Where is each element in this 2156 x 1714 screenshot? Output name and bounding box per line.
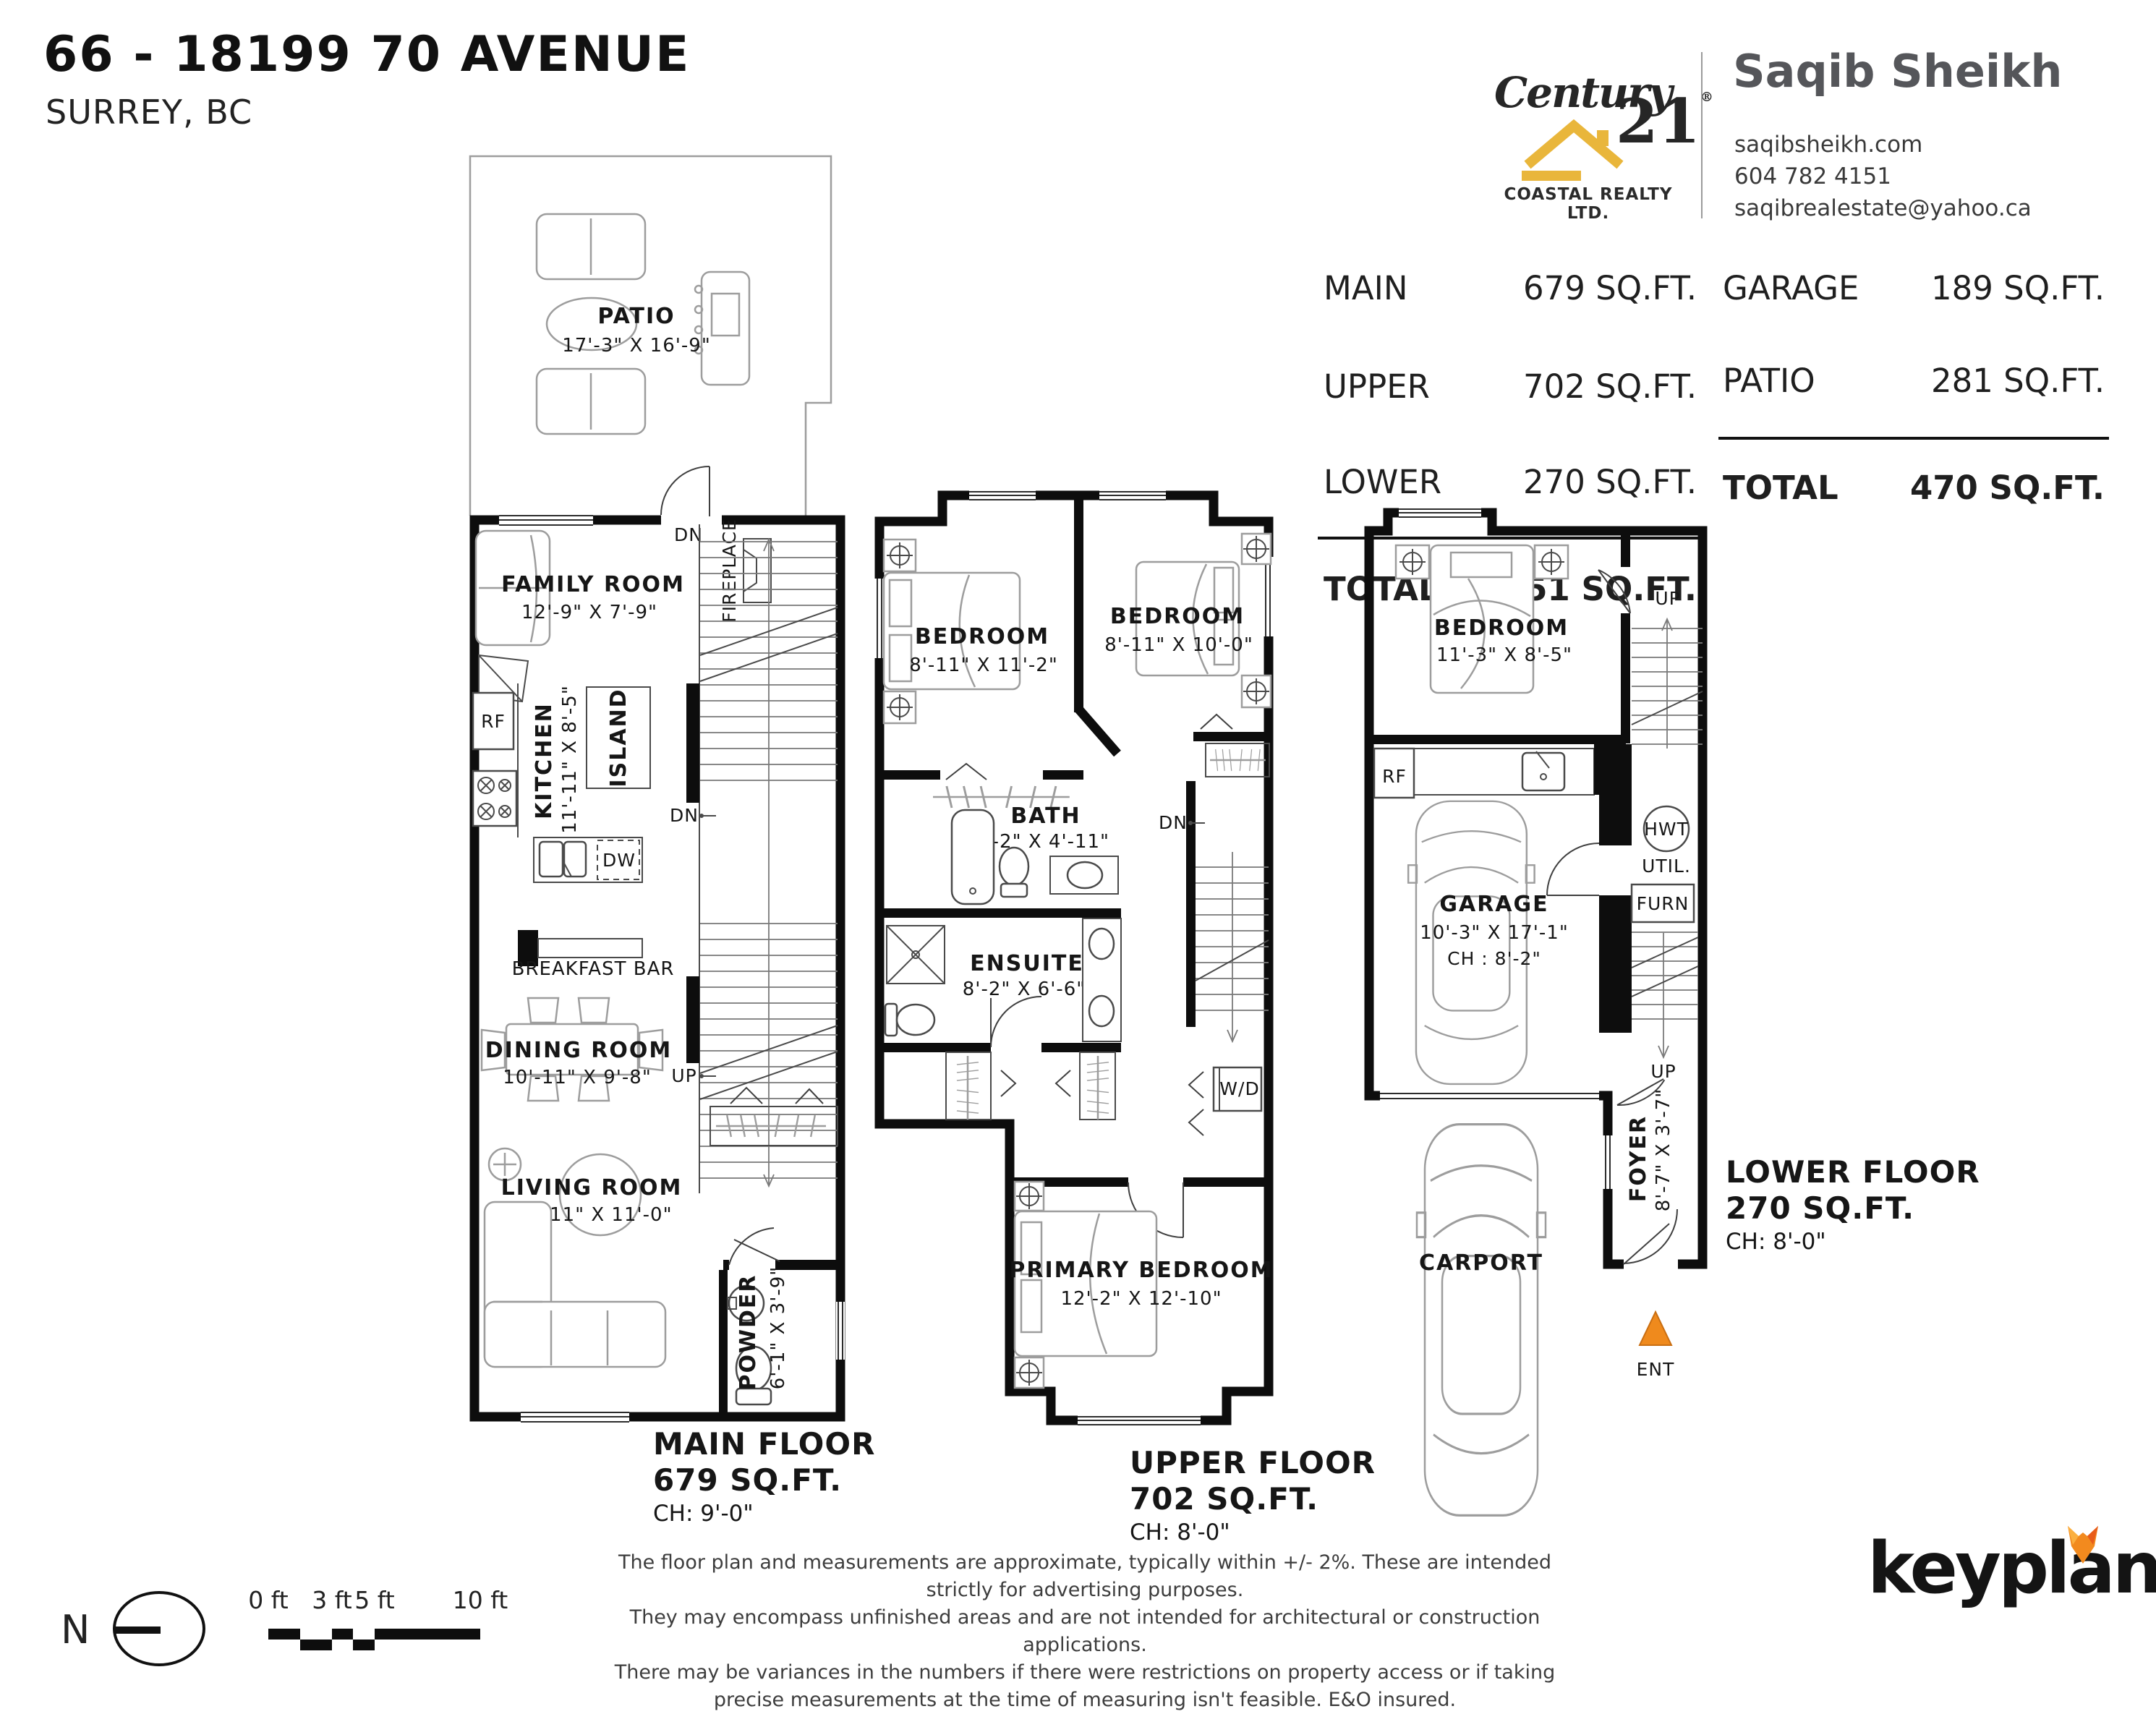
closet: [879, 764, 1083, 808]
room-label-powder: POWDER: [736, 1274, 761, 1390]
room-label-kitchen: KITCHEN: [532, 702, 557, 819]
lower-floor-plan: BEDROOM 11'-3" X 8'-5" UP RF GARAGE 10'-…: [1360, 499, 1779, 1526]
carport-car: [1417, 1125, 1546, 1516]
room-dims-dining: 10'-11" X 9'-8": [503, 1067, 652, 1088]
bathroom: BATH 8'-2" X 4'-11": [879, 803, 1121, 918]
brand-subline: COASTAL REALTY LTD.: [1491, 185, 1685, 223]
bathtub: [952, 810, 994, 904]
room-label-primary: PRIMARY BEDROOM: [1009, 1258, 1273, 1283]
room-label-dining: DINING ROOM: [485, 1038, 672, 1063]
table-divider: [1718, 437, 2109, 440]
toilet: [1000, 848, 1028, 897]
room-ch-garage: CH : 8'-2": [1447, 948, 1541, 969]
room-label-ensuite: ENSUITE: [970, 951, 1084, 976]
ent-label: ENT: [1637, 1359, 1675, 1380]
dining-room: DINING ROOM 10'-11" X 9'-8": [482, 998, 672, 1101]
stair-label-dn: DN: [674, 524, 703, 545]
room-dims-primary: 12'-2" X 12'-10": [1060, 1288, 1222, 1310]
room-dims-kitchen: 11'-11" X 8'-5": [559, 685, 581, 834]
powder-room: POWDER 6'-1" X 3'-9": [719, 1228, 845, 1419]
room-label-bedroom1: BEDROOM: [915, 624, 1049, 649]
util-label: UTIL.: [1642, 856, 1691, 877]
stove: [473, 771, 516, 826]
room-dims-bedroom1: 8'-11" X 11'-2": [909, 655, 1058, 676]
page-title: 66 - 18199 70 AVENUE: [43, 26, 690, 83]
patio: PATIO 17'-3" X 16'-9": [470, 156, 831, 516]
bbq-grill: [695, 272, 749, 385]
carport: CARPORT: [1417, 1125, 1546, 1516]
staircase: UP: [1632, 926, 1698, 1082]
room-label-foyer: FOYER: [1626, 1115, 1651, 1202]
room-dims-ensuite: 8'-2" X 6'-6": [963, 978, 1086, 1000]
dishwasher-label: DW: [602, 850, 636, 871]
brand-number: 21®: [1616, 91, 1713, 152]
bedroom: BEDROOM 11'-3" X 8'-5": [1369, 531, 1630, 744]
room-dims-powder: 6'-1" X 3'-9": [767, 1266, 789, 1390]
closet: [946, 1052, 1015, 1120]
room-label-living: LIVING ROOM: [501, 1175, 683, 1201]
lower-floor-caption: LOWER FLOOR 270 SQ.FT. CH: 8'-0": [1726, 1154, 1980, 1255]
laundry: W/D: [1189, 1067, 1261, 1135]
foyer: FOYER 8'-7" X 3'-7": [1603, 1079, 1678, 1269]
breakfast-bar-label: BREAKFAST BAR: [512, 958, 675, 980]
main-floor-caption: MAIN FLOOR 679 SQ.FT. CH: 9'-0": [653, 1426, 875, 1527]
north-arrow: N: [51, 1562, 231, 1666]
stair-label-up: UP: [1650, 1061, 1676, 1082]
main-floor-plan: PATIO 17'-3" X 16'-9" DN FIREPLACE FAMIL…: [456, 145, 853, 1439]
fridge-label: RF: [1382, 766, 1407, 787]
family-room: FAMILY ROOM 12'-9" X 7'-9": [476, 531, 685, 645]
scale-bar: 0 ft 3 ft 5 ft 10 ft: [246, 1584, 521, 1666]
scale-tick: 0 ft: [248, 1586, 289, 1614]
primary-bedroom: PRIMARY BEDROOM 12'-2" X 12'-10": [1009, 1177, 1273, 1388]
century21-house-icon: [1522, 113, 1630, 182]
room-dims-patio: 17'-3" X 16'-9": [562, 335, 711, 357]
garage: GARAGE 10'-3" X 17'-1" CH : 8'-2": [1380, 801, 1599, 1101]
island-label: ISLAND: [606, 688, 631, 787]
vanity-sink: [1050, 856, 1118, 894]
living-room: LIVING ROOM 10'-11" X 11'-0": [485, 1148, 682, 1367]
kitchen-sink: [540, 842, 586, 877]
shower: [887, 926, 945, 984]
stair-label-dn: DN: [670, 805, 699, 826]
header-divider: [1701, 52, 1703, 218]
table-row: MAIN679 SQ.FT.: [1324, 269, 1697, 307]
closet: [1056, 1052, 1115, 1120]
agent-email[interactable]: saqibrealestate@yahoo.ca: [1734, 195, 2032, 221]
agent-website[interactable]: saqibsheikh.com: [1734, 132, 1922, 158]
kitchenette: RF: [1374, 744, 1632, 798]
room-label-bedroom2: BEDROOM: [1110, 604, 1245, 629]
disclaimer: The floor plan and measurements are appr…: [593, 1549, 1577, 1714]
closet: [1193, 715, 1273, 777]
staircase: DN: [1159, 781, 1269, 1041]
room-label-garage: GARAGE: [1439, 892, 1548, 917]
room-dims-garage: 10'-3" X 17'-1": [1420, 922, 1569, 944]
room-label-patio: PATIO: [597, 304, 675, 329]
north-letter: N: [61, 1607, 90, 1653]
double-vanity: [1083, 918, 1121, 1041]
ent-triangle-icon: [1640, 1312, 1671, 1345]
agent-name: Saqib Sheikh: [1733, 45, 2063, 98]
washer-dryer-label: W/D: [1219, 1078, 1259, 1099]
page-subtitle: SURREY, BC: [46, 93, 252, 132]
upper-floor-plan: BEDROOM 8'-11" X 11'-2" BEDROOM 8'-11" X…: [861, 470, 1302, 1468]
room-label-bedroom: BEDROOM: [1434, 615, 1569, 641]
kitchen: RF KITCHEN 11'-11" X 8'-5" ISLAND DW: [473, 655, 650, 882]
table-row: PATIO281 SQ.FT.: [1723, 362, 2105, 400]
scale-tick: 10 ft: [453, 1586, 508, 1614]
stair-label-up: UP: [671, 1065, 696, 1086]
room-label-carport: CARPORT: [1419, 1250, 1543, 1276]
table-row: LOWER270 SQ.FT.: [1324, 463, 1697, 501]
breakfast-bar: BREAKFAST BAR: [512, 930, 675, 980]
keyplan-logo: keyplan: [1867, 1527, 2156, 1610]
upper-floor-caption: UPPER FLOOR 702 SQ.FT. CH: 8'-0": [1130, 1445, 1376, 1545]
keyplan-fox-icon: [2066, 1525, 2100, 1568]
agent-phone[interactable]: 604 782 4151: [1734, 163, 1891, 189]
room-dims-family: 12'-9" X 7'-9": [521, 602, 657, 623]
bar-sink: [1522, 751, 1564, 790]
room-label-family: FAMILY ROOM: [501, 572, 685, 597]
room-dims-bedroom2: 8'-11" X 10'-0": [1104, 634, 1253, 656]
hwt-label: HWT: [1644, 819, 1689, 840]
room-dims-foyer: 8'-7" X 3'-7": [1653, 1088, 1674, 1212]
room-dims-bedroom: 11'-3" X 8'-5": [1436, 644, 1572, 666]
century21-logo: Century 21® COASTAL REALTY LTD.: [1491, 64, 1685, 219]
table-row: GARAGE189 SQ.FT.: [1723, 269, 2105, 307]
table-row: UPPER702 SQ.FT.: [1324, 367, 1697, 406]
bedroom-2: BEDROOM 8'-11" X 10'-0": [1104, 534, 1271, 707]
stair-label-dn: DN: [1159, 812, 1188, 833]
ensuite: ENSUITE 8'-2" X 6'-6": [879, 918, 1121, 1052]
scale-tick: 3 ft: [312, 1586, 352, 1614]
fridge-label: RF: [481, 711, 506, 732]
toilet: [885, 1004, 934, 1036]
furnace-label: FURN: [1637, 893, 1690, 914]
scale-tick: 5 ft: [354, 1586, 395, 1614]
staircase: UP: [1632, 588, 1703, 749]
table-total-row: TOTAL470 SQ.FT.: [1723, 469, 2105, 507]
entrance-marker: ENT: [1637, 1312, 1675, 1380]
stair-label-up: UP: [1655, 588, 1680, 609]
bedroom-1: BEDROOM 8'-11" X 11'-2": [884, 540, 1058, 723]
room-label-bath: BATH: [1010, 803, 1081, 829]
